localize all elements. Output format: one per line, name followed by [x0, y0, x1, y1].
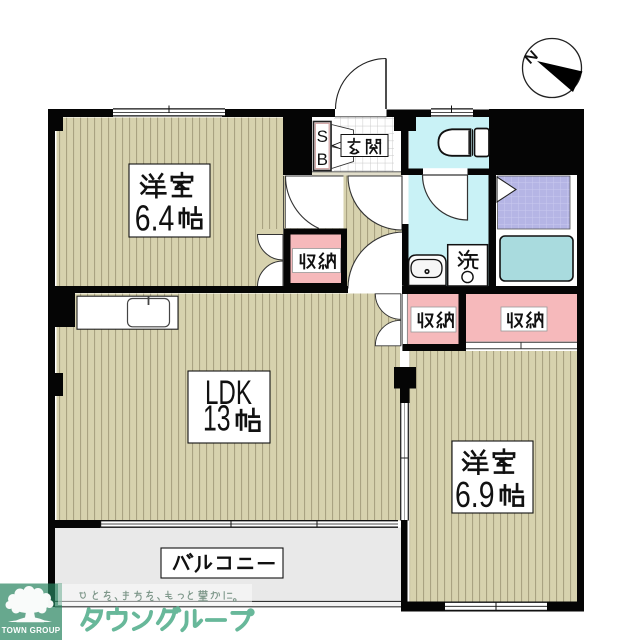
svg-text:TOWN GROUP: TOWN GROUP: [2, 626, 61, 635]
svg-text:13: 13: [203, 398, 231, 439]
svg-text:6.4: 6.4: [135, 198, 175, 239]
svg-text:S: S: [317, 127, 328, 146]
svg-text:6.9: 6.9: [455, 474, 495, 515]
svg-text:B: B: [317, 150, 328, 169]
